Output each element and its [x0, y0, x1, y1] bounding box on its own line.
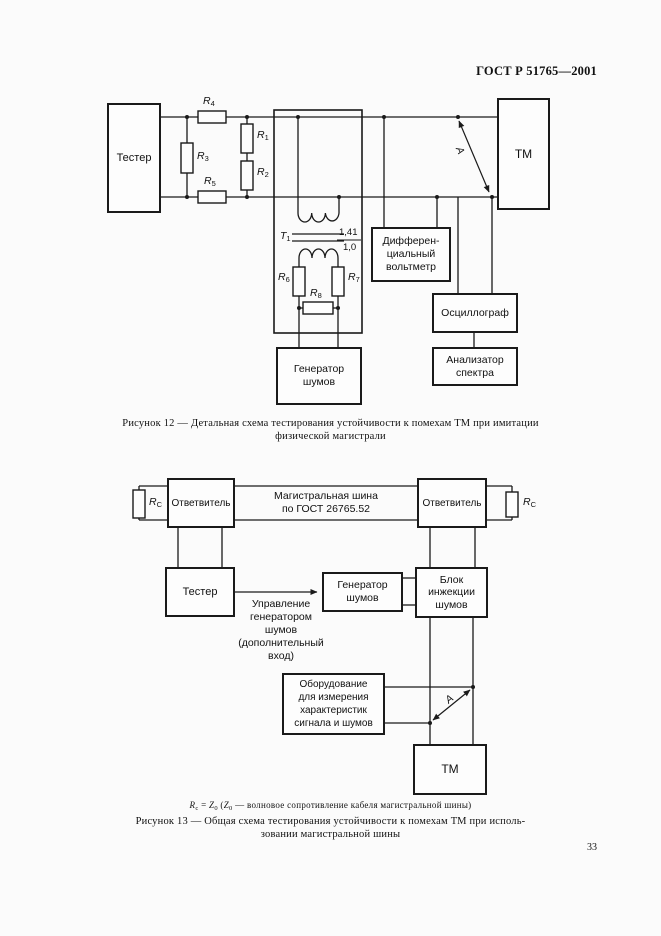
fig13-control-input-note: Управление генератором шумов (дополнител…	[228, 598, 334, 663]
fig13-caption: Рисунок 13 — Общая схема тестирования ус…	[30, 815, 631, 841]
fig12-r8-label: R8	[310, 287, 322, 300]
fig13-control-input-line: (дополнительный	[228, 637, 334, 650]
fig13-bus-label-line: по ГОСТ 26765.52	[282, 503, 370, 516]
fig13-tm-box: ТМ	[413, 744, 487, 795]
fig13-noise-injection-box: Блок инжекции шумов	[415, 567, 488, 618]
fig12-noise-generator-label: Генератор	[294, 363, 344, 376]
fig13-noise-generator-label: Генератор	[337, 579, 387, 592]
fig12-r1-label: R1	[257, 129, 269, 142]
fig13-tester-box: Тестер	[165, 567, 235, 617]
fig12-tm-box: ТМ	[497, 98, 550, 210]
fig13-rc-right-label: RС	[523, 496, 536, 509]
fig13-noise-generator-box: Генератор шумов	[322, 572, 403, 612]
fig12-noise-generator-box: Генератор шумов	[276, 347, 362, 405]
fig13-coupler-label: Ответвитель	[422, 497, 481, 510]
fig12-tm-label: ТМ	[515, 148, 532, 161]
fig13-measurement-equipment-label: характеристик	[300, 704, 367, 717]
fig13-noise-injection-label: Блок	[440, 574, 463, 587]
fig12-ratio-denominator: 1,0	[343, 242, 356, 253]
fig12-arrow-a	[459, 121, 489, 192]
fig13-noise-generator-label: шумов	[346, 592, 378, 605]
fig12-spectrum-analyzer-box: Анализатор спектра	[432, 347, 518, 386]
fig12-r5-label: R5	[204, 175, 216, 188]
fig13-caption-line: Рисунок 13 — Общая схема тестирования ус…	[30, 815, 631, 828]
fig12-tester-label: Тестер	[117, 152, 152, 165]
fig12-oscilloscope-box: Осциллограф	[432, 293, 518, 333]
fig13-control-input-line: Управление	[228, 598, 334, 611]
fig13-tester-label: Тестер	[183, 586, 218, 599]
fig13-caption-line: зовании магистральной шины	[30, 828, 631, 841]
document-page: ГОСТ Р 51765—2001	[0, 0, 661, 936]
fig13-noise-injection-label: инжекции	[428, 586, 475, 599]
fig12-voltmeter-label: вольтметр	[386, 261, 436, 274]
page-number: 33	[587, 842, 597, 853]
fig12-r7-label: R7	[348, 271, 360, 284]
fig13-control-input-line: генератором	[228, 611, 334, 624]
fig12-caption-line: физической магистрали	[30, 430, 631, 443]
fig12-voltmeter-label: циальный	[387, 248, 436, 261]
fig12-caption: Рисунок 12 — Детальная схема тестировани…	[30, 417, 631, 443]
fig12-r6-label: R6	[278, 271, 290, 284]
fig13-bus-label: Магистральная шина по ГОСТ 26765.52	[240, 488, 412, 518]
fig13-coupler-left-box: Ответвитель	[167, 478, 235, 528]
fig12-spectrum-analyzer-label: Анализатор	[446, 354, 503, 367]
fig12-noise-generator-label: шумов	[303, 376, 335, 389]
fig12-r4-label: R4	[203, 95, 215, 108]
fig13-coupler-right-box: Ответвитель	[417, 478, 487, 528]
fig13-formula-note: Rс = Z0 (Z0 — волновое сопротивление каб…	[30, 800, 631, 812]
fig13-measurement-equipment-label: Оборудование	[299, 678, 367, 691]
fig13-measurement-equipment-box: Оборудование для измерения характеристик…	[282, 673, 385, 735]
fig12-ratio-numerator: 1,41	[339, 227, 358, 238]
fig13-bus-label-line: Магистральная шина	[274, 490, 378, 503]
fig12-spectrum-analyzer-label: спектра	[456, 367, 494, 380]
fig12-t1-label: T1	[280, 230, 291, 243]
fig12-voltmeter-box: Дифферен- циальный вольтметр	[371, 227, 451, 282]
fig12-r3-label: R3	[197, 150, 209, 163]
fig13-coupler-label: Ответвитель	[171, 497, 230, 510]
fig12-oscilloscope-label: Осциллограф	[441, 307, 509, 320]
fig13-measurement-equipment-label: сигнала и шумов	[294, 717, 373, 730]
fig13-control-input-line: вход)	[228, 650, 334, 663]
fig13-measurement-equipment-label: для измерения	[298, 691, 368, 704]
fig13-rc-left-label: RС	[149, 496, 162, 509]
fig13-noise-injection-label: шумов	[435, 599, 467, 612]
fig12-r2-label: R2	[257, 166, 269, 179]
fig12-tester-box: Тестер	[107, 103, 161, 213]
schematic-geometry	[0, 0, 661, 936]
fig13-tm-label: ТМ	[441, 763, 458, 776]
fig12-voltmeter-label: Дифферен-	[382, 235, 439, 248]
fig12-caption-line: Рисунок 12 — Детальная схема тестировани…	[30, 417, 631, 430]
fig13-control-input-line: шумов	[228, 624, 334, 637]
